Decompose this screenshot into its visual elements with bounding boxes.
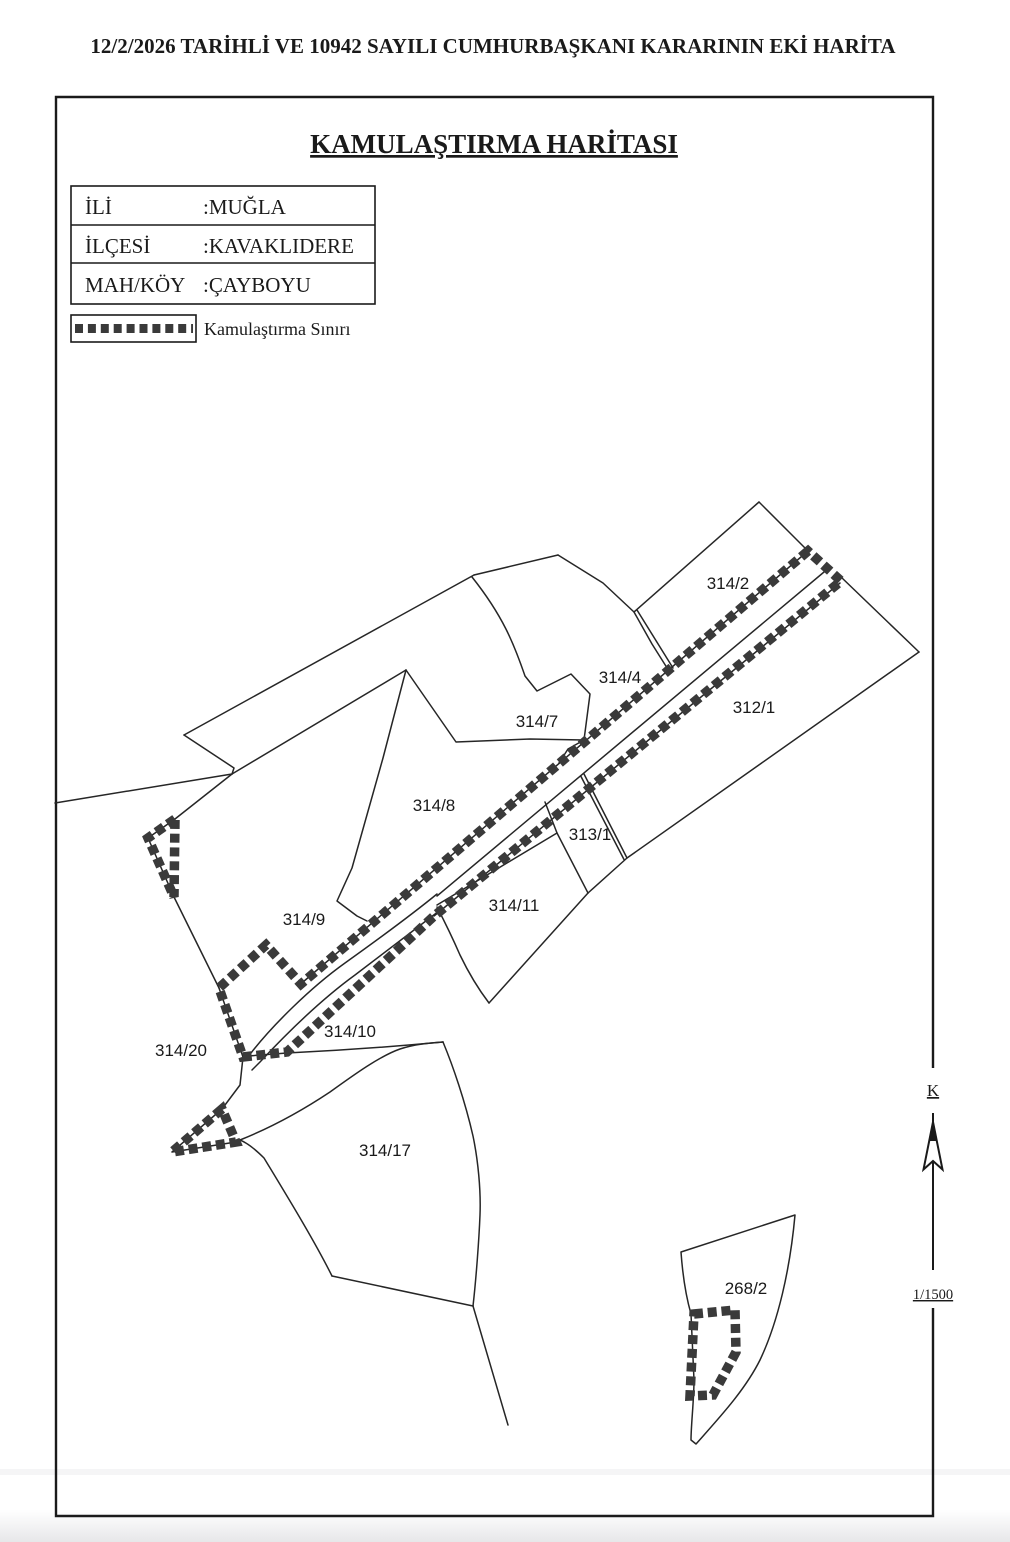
svg-text:314/11: 314/11 bbox=[489, 896, 540, 915]
svg-text:İLİ: İLİ bbox=[85, 195, 112, 219]
svg-text:MAH/KÖY: MAH/KÖY bbox=[85, 273, 185, 297]
svg-text::ÇAYBOYU: :ÇAYBOYU bbox=[203, 273, 311, 297]
svg-text::KAVAKLIDERE: :KAVAKLIDERE bbox=[203, 234, 354, 258]
svg-text:314/4: 314/4 bbox=[599, 668, 642, 687]
svg-text:314/17: 314/17 bbox=[359, 1141, 411, 1160]
svg-text:K: K bbox=[927, 1081, 940, 1100]
svg-text:314/2: 314/2 bbox=[707, 574, 750, 593]
svg-text::MUĞLA: :MUĞLA bbox=[203, 195, 287, 219]
svg-text:12/2/2026 TARİHLİ VE 10942 SAY: 12/2/2026 TARİHLİ VE 10942 SAYILI CUMHUR… bbox=[90, 34, 896, 58]
svg-text:314/9: 314/9 bbox=[283, 910, 326, 929]
svg-text:313/1: 313/1 bbox=[569, 825, 612, 844]
svg-text:314/8: 314/8 bbox=[413, 796, 456, 815]
svg-text:314/10: 314/10 bbox=[324, 1022, 376, 1041]
svg-text:268/2: 268/2 bbox=[725, 1279, 768, 1298]
svg-text:312/1: 312/1 bbox=[733, 698, 776, 717]
svg-text:314/20: 314/20 bbox=[155, 1041, 207, 1060]
svg-text:314/7: 314/7 bbox=[516, 712, 559, 731]
svg-text:1/1500: 1/1500 bbox=[913, 1287, 953, 1303]
svg-text:İLÇESİ: İLÇESİ bbox=[85, 234, 150, 258]
svg-text:KAMULAŞTIRMA HARİTASI: KAMULAŞTIRMA HARİTASI bbox=[310, 129, 678, 159]
svg-text:Kamulaştırma Sınırı: Kamulaştırma Sınırı bbox=[204, 319, 350, 339]
